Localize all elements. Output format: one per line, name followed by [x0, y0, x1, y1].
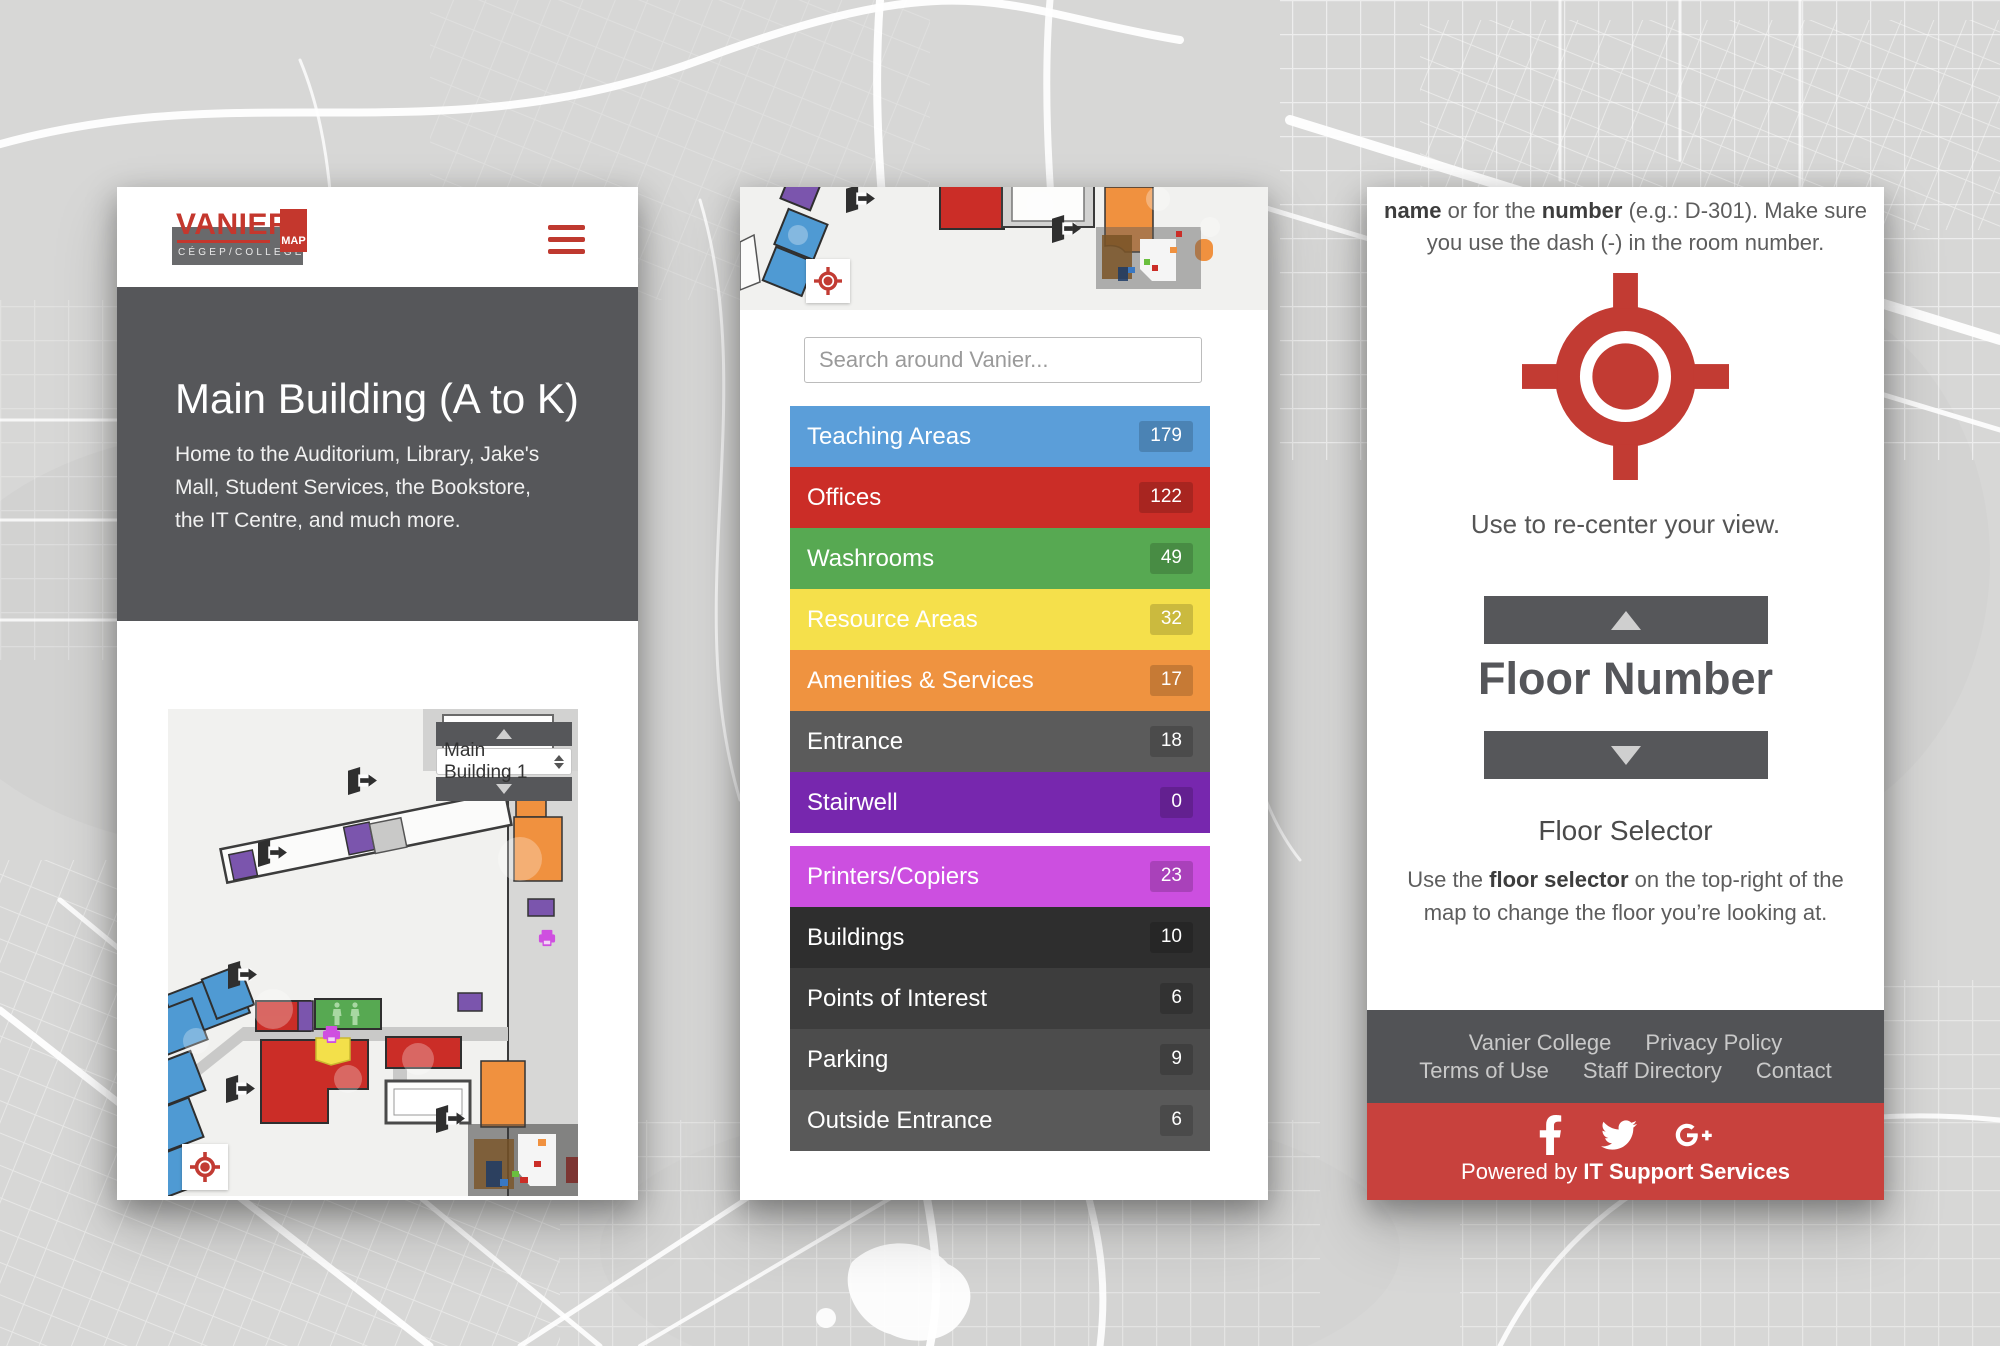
category-row-resource-areas[interactable]: Resource Areas 32 — [790, 589, 1210, 650]
category-row-entrance[interactable]: Entrance 18 — [790, 711, 1210, 772]
arrow-up-icon — [1611, 611, 1641, 630]
footer-link-contact[interactable]: Contact — [1756, 1057, 1832, 1085]
category-label: Resource Areas — [807, 606, 978, 634]
category-row-washrooms[interactable]: Washrooms 49 — [790, 528, 1210, 589]
category-row-amenities-services[interactable]: Amenities & Services 17 — [790, 650, 1210, 711]
crosshair-icon — [190, 1152, 220, 1182]
category-row-outside-entrance[interactable]: Outside Entrance 6 — [790, 1090, 1210, 1151]
footer-link-terms-of-use[interactable]: Terms of Use — [1419, 1057, 1549, 1085]
category-row-points-of-interest[interactable]: Points of Interest 6 — [790, 968, 1210, 1029]
help-page-panel: name or for the number (e.g.: D-301). Ma… — [1367, 187, 1884, 1200]
category-label: Washrooms — [807, 545, 934, 573]
category-count-badge: 122 — [1139, 482, 1193, 513]
screenshot-stage: VANIER CÉGEP/COLLEGE MAP Main Building (… — [0, 0, 2000, 1346]
recenter-button[interactable] — [182, 1144, 228, 1190]
it-support-services-link[interactable]: IT Support Services — [1583, 1159, 1790, 1184]
logo-wordmark: VANIER — [176, 210, 290, 240]
floor-number-label: Floor Number — [1367, 653, 1884, 705]
arrow-down-icon — [1611, 746, 1641, 765]
crosshair-illustration — [1522, 273, 1729, 480]
floor-map[interactable]: Main Building 1 — [168, 709, 578, 1196]
building-page-panel: VANIER CÉGEP/COLLEGE MAP Main Building (… — [117, 187, 638, 1200]
hamburger-icon — [548, 225, 585, 230]
search-input[interactable] — [804, 337, 1202, 383]
footer-link-privacy-policy[interactable]: Privacy Policy — [1645, 1029, 1782, 1057]
category-row-teaching-areas[interactable]: Teaching Areas 179 — [790, 406, 1210, 467]
category-count-badge: 10 — [1150, 922, 1193, 953]
search-categories-panel: Teaching Areas 179 Offices 122 Washrooms… — [740, 187, 1268, 1200]
category-label: Outside Entrance — [807, 1107, 992, 1135]
social-footer: Powered by IT Support Services — [1367, 1103, 1884, 1200]
facebook-icon[interactable] — [1538, 1115, 1563, 1155]
floor-down-button[interactable] — [1484, 731, 1768, 779]
category-label: Teaching Areas — [807, 423, 971, 451]
category-label: Entrance — [807, 728, 903, 756]
floor-map[interactable] — [740, 187, 1268, 310]
map-photo-overlay — [1096, 227, 1201, 289]
recenter-caption: Use to re-center your view. — [1367, 509, 1884, 540]
category-count-badge: 23 — [1150, 861, 1193, 892]
twitter-icon[interactable] — [1601, 1117, 1637, 1153]
category-row-offices[interactable]: Offices 122 — [790, 467, 1210, 528]
category-label: Offices — [807, 484, 881, 512]
footer-link-vanier-college[interactable]: Vanier College — [1469, 1029, 1612, 1057]
category-count-badge: 6 — [1160, 1105, 1193, 1136]
search-help-text: name or for the number (e.g.: D-301). Ma… — [1381, 195, 1870, 259]
category-label: Points of Interest — [807, 985, 987, 1013]
category-label: Stairwell — [807, 789, 898, 817]
category-count-badge: 6 — [1160, 983, 1193, 1014]
category-row-printers-copiers[interactable]: Printers/Copiers 23 — [790, 846, 1210, 907]
category-label: Amenities & Services — [807, 667, 1034, 695]
category-count-badge: 179 — [1139, 421, 1193, 452]
floor-up-button[interactable] — [1484, 596, 1768, 644]
floor-select-value: Main Building 1 — [444, 740, 554, 784]
category-count-badge: 18 — [1150, 726, 1193, 757]
category-count-badge: 9 — [1160, 1044, 1193, 1075]
building-hero: Main Building (A to K) Home to the Audit… — [117, 287, 638, 621]
category-list: Teaching Areas 179 Offices 122 Washrooms… — [790, 406, 1210, 1151]
category-count-badge: 49 — [1150, 543, 1193, 574]
logo-map-badge: MAP — [280, 209, 307, 252]
powered-by-text: Powered by IT Support Services — [1367, 1159, 1884, 1185]
category-label: Printers/Copiers — [807, 863, 979, 891]
logo-underline — [177, 240, 270, 243]
crosshair-icon — [814, 267, 842, 295]
floor-selector-text: Use the floor selector on the top-right … — [1405, 863, 1846, 929]
category-label: Buildings — [807, 924, 904, 952]
footer-link-staff-directory[interactable]: Staff Directory — [1583, 1057, 1722, 1085]
arrow-up-icon — [496, 729, 512, 739]
map-photo-overlay — [468, 1124, 578, 1196]
map-floor-selector: Main Building 1 — [436, 722, 572, 803]
category-row-stairwell[interactable]: Stairwell 0 — [790, 772, 1210, 833]
category-label: Parking — [807, 1046, 888, 1074]
category-count-badge: 17 — [1150, 665, 1193, 696]
category-row-parking[interactable]: Parking 9 — [790, 1029, 1210, 1090]
page-description: Home to the Auditorium, Library, Jake's … — [175, 439, 547, 537]
category-count-badge: 32 — [1150, 604, 1193, 635]
google-plus-icon[interactable] — [1675, 1120, 1713, 1150]
page-title: Main Building (A to K) — [175, 375, 598, 423]
floor-selector-heading: Floor Selector — [1367, 815, 1884, 847]
hamburger-menu-button[interactable] — [548, 225, 585, 255]
vanier-map-logo[interactable]: VANIER CÉGEP/COLLEGE MAP — [172, 209, 312, 267]
category-row-buildings[interactable]: Buildings 10 — [790, 907, 1210, 968]
recenter-button[interactable] — [806, 259, 850, 303]
category-count-badge: 0 — [1160, 787, 1193, 818]
select-chevrons-icon — [554, 755, 564, 769]
site-footer: Vanier College Privacy Policy Terms of U… — [1367, 1010, 1884, 1103]
arrow-down-icon — [496, 784, 512, 794]
app-header: VANIER CÉGEP/COLLEGE MAP — [117, 187, 638, 287]
floor-select-dropdown[interactable]: Main Building 1 — [436, 748, 572, 775]
